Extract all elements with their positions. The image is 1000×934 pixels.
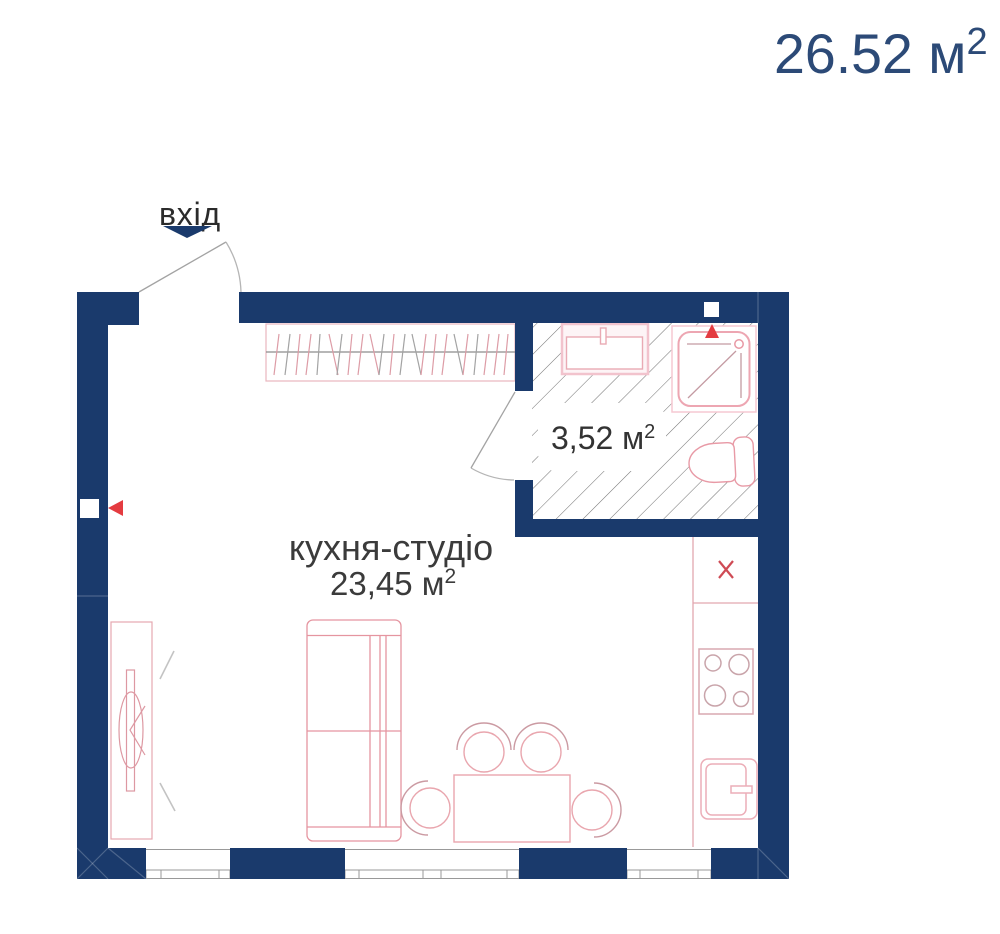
svg-text:26.52 м2: 26.52 м2 — [774, 21, 988, 85]
svg-text:23,45 м2: 23,45 м2 — [330, 565, 456, 602]
svg-text:кухня-студіо: кухня-студіо — [289, 527, 493, 568]
svg-text:3,52 м2: 3,52 м2 — [551, 420, 655, 456]
